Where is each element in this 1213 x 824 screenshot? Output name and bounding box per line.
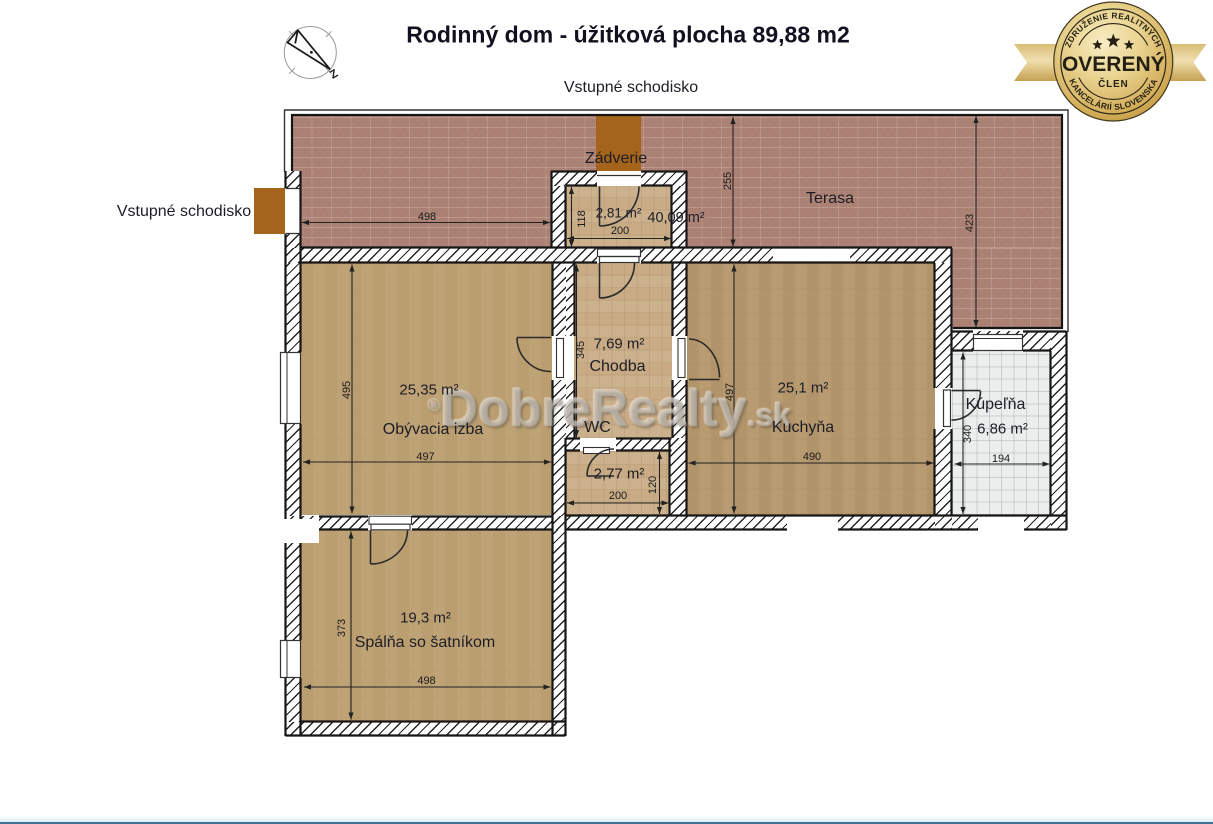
svg-text:Z: Z — [328, 68, 340, 82]
svg-text:ČLEN: ČLEN — [1098, 77, 1128, 90]
svg-text:OVERENÝ: OVERENÝ — [1062, 52, 1165, 76]
